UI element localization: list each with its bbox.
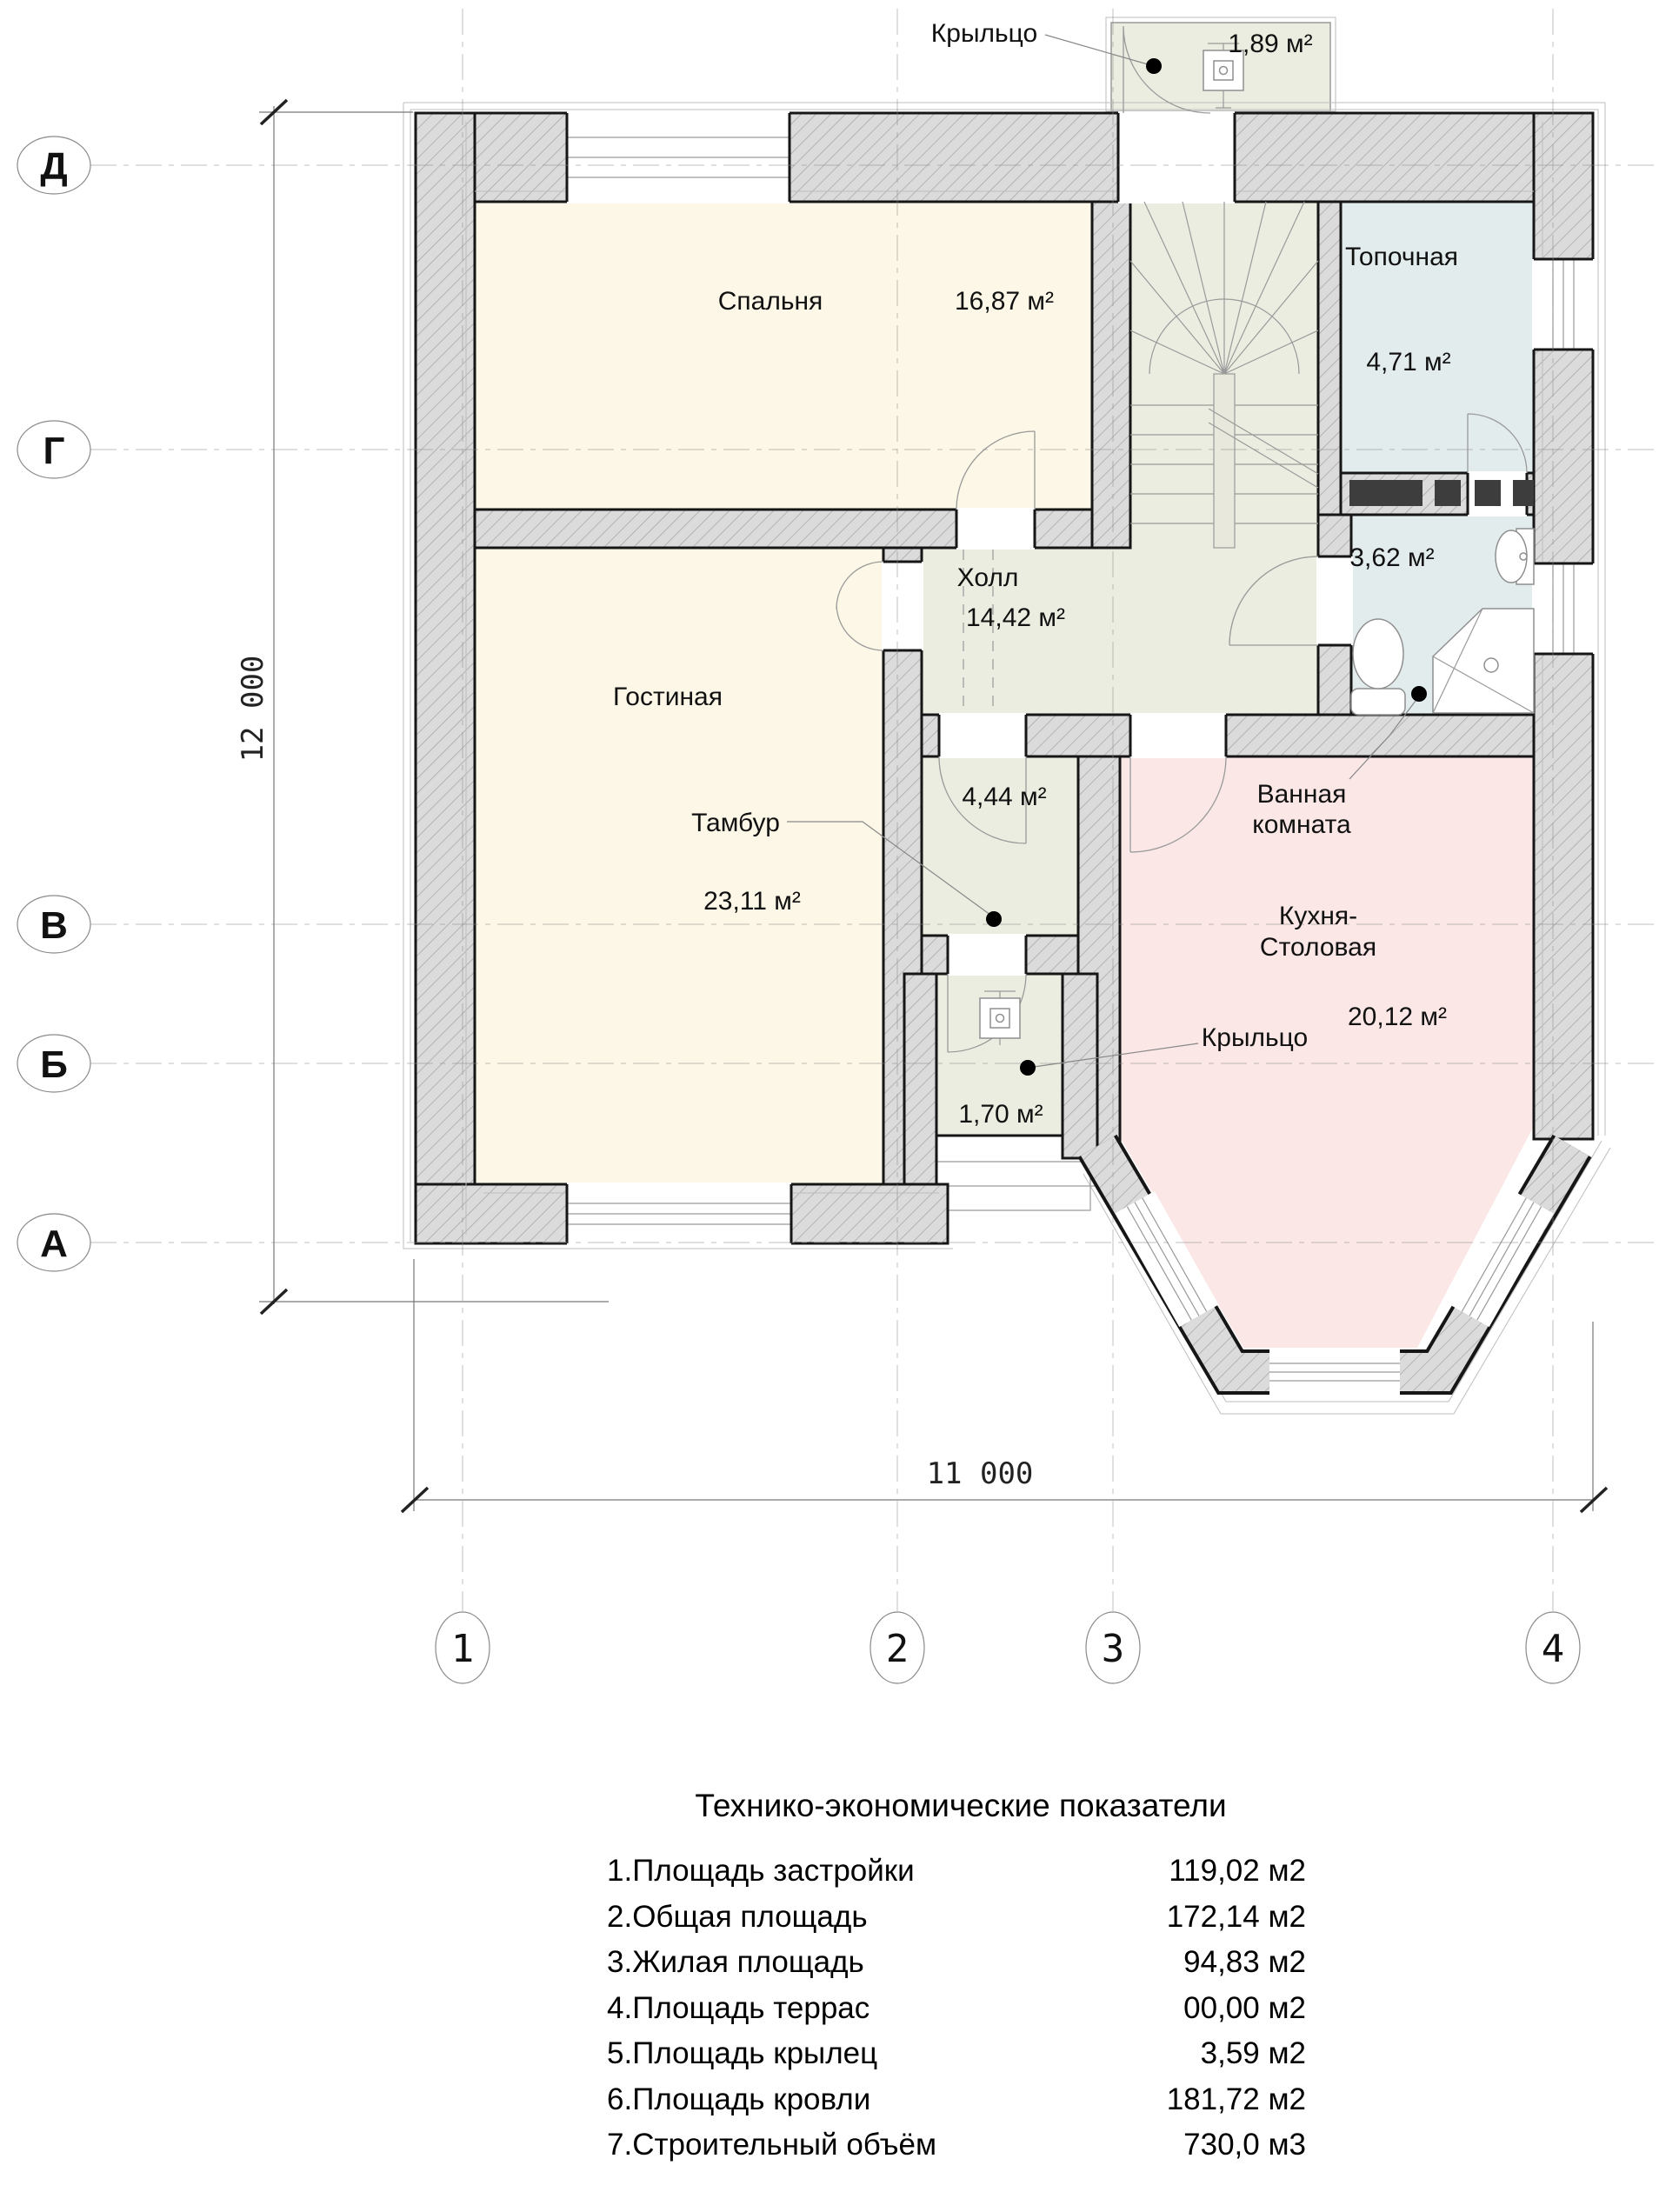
row-value: 181,72 м2 — [1167, 2077, 1322, 2123]
kitchen-label-line2: Столовая — [1260, 933, 1376, 962]
indicators-table: Технико-экономические показатели 1.Площа… — [600, 1788, 1322, 2169]
row-label: 2.Общая площадь — [600, 1895, 868, 1941]
bedroom-floor — [475, 200, 1092, 510]
axis-col-4: 4 — [1542, 1627, 1565, 1671]
table-row: 6.Площадь кровли 181,72 м2 — [600, 2077, 1322, 2123]
row-value: 3,59 м2 — [1201, 2031, 1322, 2077]
porch-bottom-label: Крыльцо — [1202, 1023, 1308, 1052]
row-label: 3.Жилая площадь — [600, 1940, 864, 1986]
tambour-label: Тамбур — [691, 809, 780, 837]
table-row: 2.Общая площадь 172,14 м2 — [600, 1895, 1322, 1941]
porch-bottom-area: 1,70 м² — [958, 1100, 1043, 1129]
bedroom-label: Спальня — [718, 287, 823, 316]
table-row: 7.Строительный объём 730,0 м3 — [600, 2122, 1322, 2169]
floor-plan-sheet: Д Г В Б А 1 2 3 4 12 000 11 000 Крыл — [0, 0, 1679, 2212]
axis-row-g: Г — [43, 430, 65, 472]
hall-label: Холл — [957, 563, 1019, 592]
axis-row-a: А — [40, 1223, 68, 1265]
bathroom-area: 3,62 м² — [1349, 543, 1434, 572]
living-area: 23,11 м² — [703, 887, 801, 916]
axis-row-d: Д — [40, 145, 67, 188]
floor-plan-svg: Д Г В Б А 1 2 3 4 12 000 11 000 Крыл — [0, 0, 1679, 1722]
toilet-icon — [1351, 619, 1405, 715]
entry-door-symbol-bottom — [980, 991, 1020, 1045]
axis-row-v: В — [40, 904, 68, 947]
row-value: 172,14 м2 — [1167, 1895, 1322, 1941]
row-label: 7.Строительный объём — [600, 2122, 936, 2169]
axis-row-b: Б — [40, 1043, 68, 1086]
kitchen-area: 20,12 м² — [1348, 1003, 1447, 1031]
dim-height: 12 000 — [236, 656, 270, 763]
row-value: 94,83 м2 — [1183, 1940, 1322, 1986]
table-row: 5.Площадь крылец 3,59 м2 — [600, 2031, 1322, 2077]
row-value: 730,0 м3 — [1183, 2122, 1322, 2169]
row-label: 4.Площадь террас — [600, 1986, 869, 2032]
row-label: 5.Площадь крылец — [600, 2031, 877, 2077]
bedroom-area: 16,87 м² — [955, 287, 1054, 316]
row-value: 00,00 м2 — [1183, 1986, 1322, 2032]
axis-col-3: 3 — [1102, 1627, 1125, 1671]
boiler-label: Топочная — [1345, 243, 1458, 271]
row-label: 6.Площадь кровли — [600, 2077, 870, 2123]
table-row: 4.Площадь террас 00,00 м2 — [600, 1986, 1322, 2032]
kitchen-label-line1: Кухня- — [1279, 902, 1357, 930]
boiler-floor — [1341, 200, 1534, 473]
table-row: 3.Жилая площадь 94,83 м2 — [600, 1940, 1322, 1986]
bathroom-label-line2: комната — [1252, 810, 1351, 839]
living-floor — [475, 548, 883, 1184]
porch-top-label: Крыльцо — [931, 19, 1037, 48]
bathroom-label-line1: Ванная — [1257, 780, 1347, 809]
hall-area: 14,42 м² — [966, 603, 1065, 632]
axis-col-2: 2 — [886, 1627, 909, 1671]
axis-col-1: 1 — [451, 1627, 475, 1671]
table-row: 1.Площадь застройки 119,02 м2 — [600, 1849, 1322, 1895]
row-value: 119,02 м2 — [1169, 1849, 1322, 1895]
indicators-title: Технико-экономические показатели — [600, 1788, 1322, 1824]
porch-top-area: 1,89 м² — [1228, 30, 1312, 58]
tambour-area: 4,44 м² — [962, 783, 1046, 811]
sink-icon — [1496, 529, 1534, 584]
boiler-area: 4,71 м² — [1366, 348, 1450, 376]
row-label: 1.Площадь застройки — [600, 1849, 915, 1895]
living-label: Гостиная — [613, 683, 723, 711]
dim-width: 11 000 — [927, 1456, 1034, 1491]
